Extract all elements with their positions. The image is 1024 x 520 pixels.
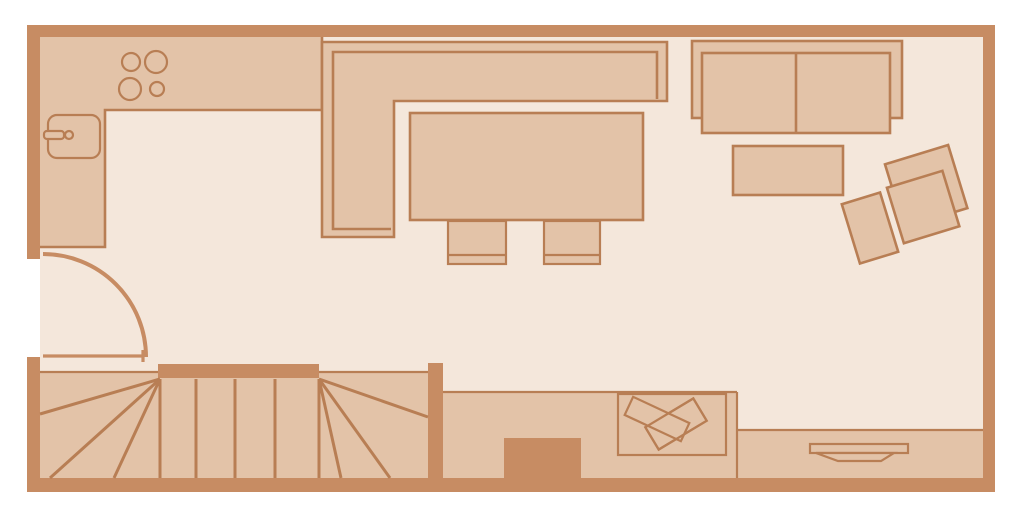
door-opening (26, 259, 40, 357)
staircase (40, 363, 443, 478)
stair-side-wall (428, 363, 443, 478)
floor-plan (0, 0, 1024, 520)
sofa (692, 41, 902, 133)
stair-landing-wall (158, 364, 319, 378)
coffee-table (733, 146, 843, 195)
dining-chair (448, 221, 506, 264)
dining-chair (544, 221, 600, 264)
dining-table (410, 113, 643, 220)
sink-tap (44, 131, 64, 139)
sink-icon (44, 115, 100, 158)
chimney-block (504, 438, 581, 478)
desk (618, 394, 726, 455)
tv-screen (810, 444, 908, 453)
